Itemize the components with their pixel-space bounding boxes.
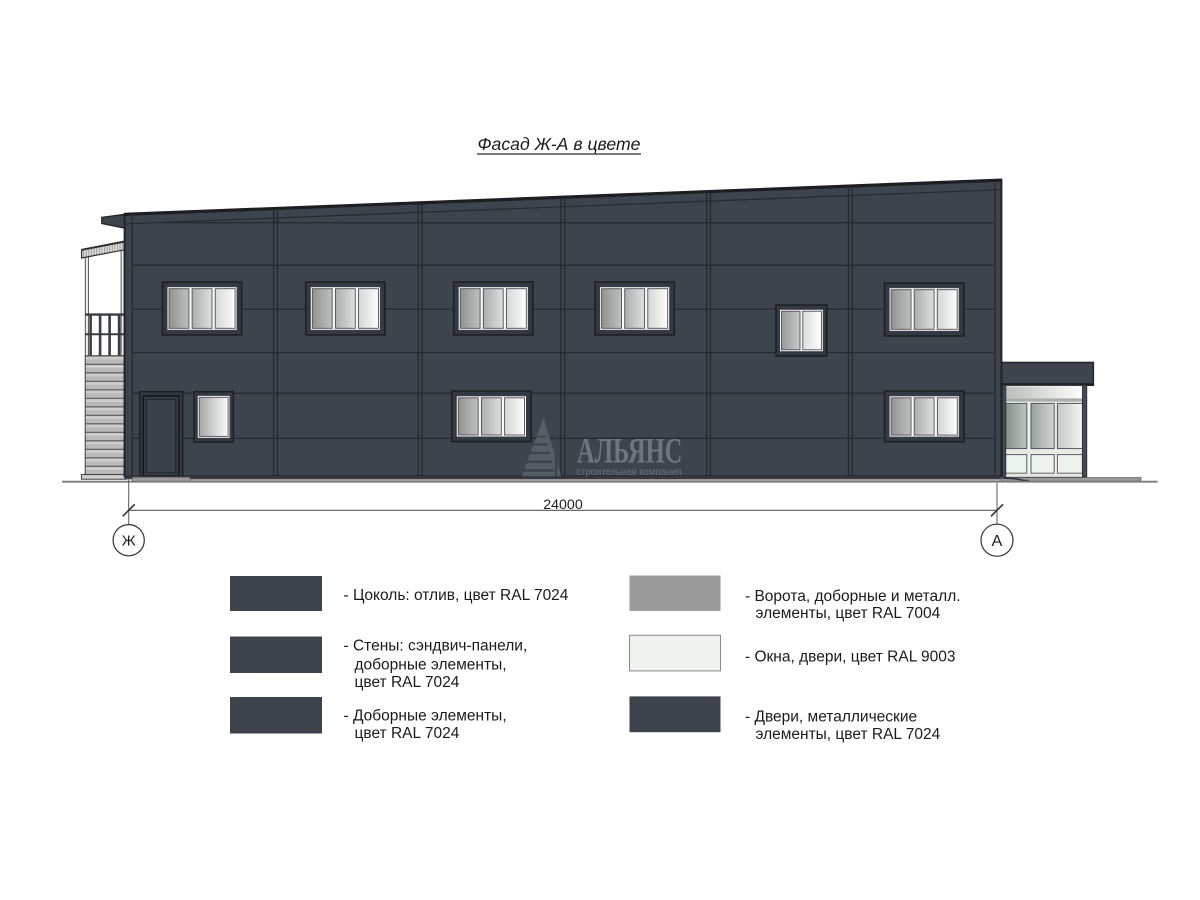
svg-text:24000: 24000: [543, 497, 583, 513]
svg-text:- Ворота, доборные и металл.: - Ворота, доборные и металл.: [745, 588, 961, 605]
svg-text:цвет RAL 7024: цвет RAL 7024: [355, 725, 460, 742]
svg-text:элементы, цвет RAL 7024: элементы, цвет RAL 7024: [756, 726, 941, 743]
svg-text:- Цоколь: отлив, цвет RAL 7024: - Цоколь: отлив, цвет RAL 7024: [344, 587, 569, 604]
svg-text:цвет RAL 7024: цвет RAL 7024: [355, 674, 460, 691]
svg-text:элементы, цвет RAL 7004: элементы, цвет RAL 7004: [756, 605, 941, 622]
svg-text:- Двери, металлические: - Двери, металлические: [745, 709, 917, 726]
svg-text:- Стены: сэндвич-панели,: - Стены: сэндвич-панели,: [344, 638, 528, 655]
svg-text:АЛЬЯНС: АЛЬЯНС: [577, 431, 682, 471]
svg-text:- Окна, двери, цвет RAL 9003: - Окна, двери, цвет RAL 9003: [745, 649, 956, 666]
svg-text:Ж: Ж: [122, 533, 136, 550]
svg-text:Фасад Ж-А в цвете: Фасад Ж-А в цвете: [478, 134, 641, 154]
svg-text:А: А: [992, 533, 1003, 550]
svg-text:строительная компания: строительная компания: [576, 467, 681, 478]
svg-text:доборные элементы,: доборные элементы,: [355, 657, 507, 674]
svg-text:- Доборные элементы,: - Доборные элементы,: [344, 708, 507, 725]
